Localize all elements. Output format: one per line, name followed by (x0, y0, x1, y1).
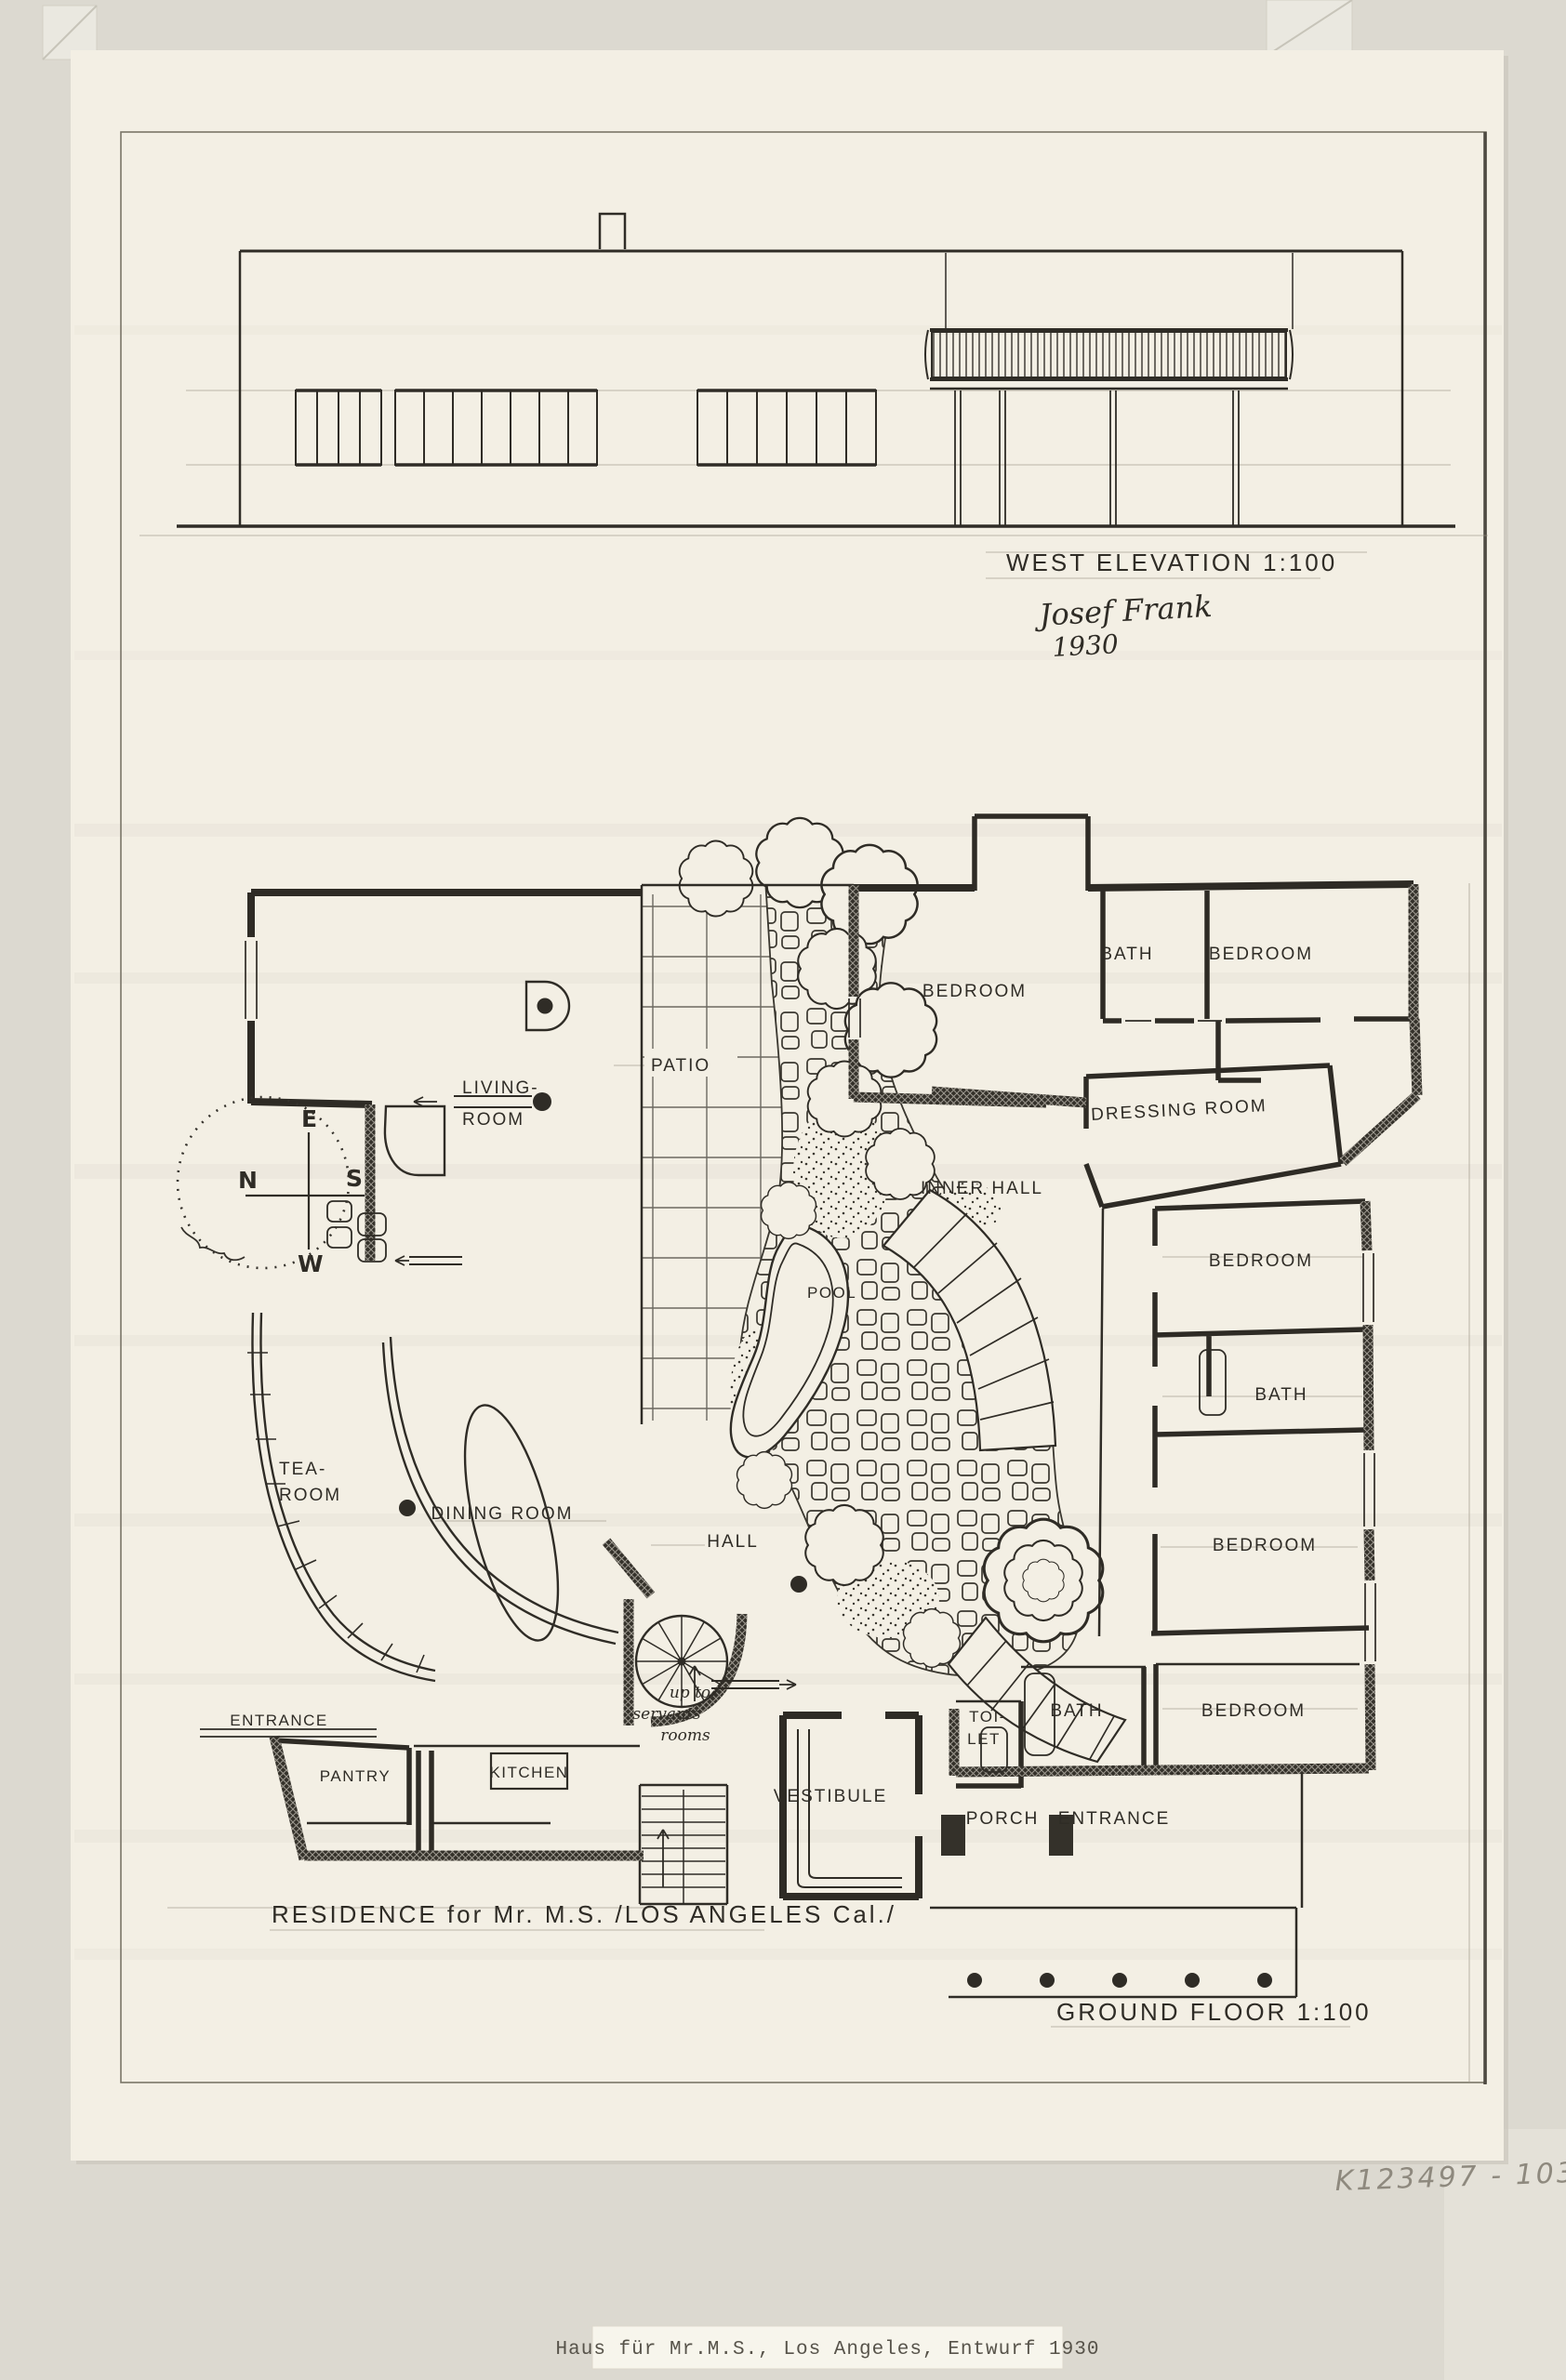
photo-corner-top-right (1267, 0, 1352, 56)
compass-north: N (238, 1167, 258, 1194)
label-dining-room: DINING ROOM (431, 1504, 574, 1524)
round-bush (984, 1519, 1103, 1642)
label-vestibule: VESTIBULE (774, 1787, 888, 1806)
signature-year: 1930 (1052, 628, 1120, 663)
label-tea-line2: ROOM (279, 1486, 341, 1505)
label-stair-note-line3: rooms (660, 1726, 710, 1745)
label-pantry: PANTRY (320, 1767, 391, 1785)
label-tea-line1: TEA- (279, 1460, 326, 1479)
label-patio: PATIO (651, 1056, 710, 1076)
label-toilet-line1: TOI- (969, 1708, 1006, 1725)
scanned-drawing: E N S W PATIO LIVING- ROOM BEDROOM BATH … (0, 0, 1566, 2380)
label-bedroom-top: BEDROOM (922, 982, 1027, 1001)
label-entrance-main: ENTRANCE (1058, 1809, 1171, 1829)
typed-label-text: Haus für Mr.M.S., Los Angeles, Entwurf 1… (556, 2339, 1100, 2360)
label-bedroom-top-right: BEDROOM (1209, 945, 1313, 964)
label-stair-note-line2: servants (632, 1705, 700, 1724)
label-bedroom-low: BEDROOM (1213, 1536, 1317, 1555)
label-porch: PORCH (966, 1809, 1040, 1829)
label-pool: POOL (807, 1284, 856, 1302)
label-bedroom-south: BEDROOM (1201, 1701, 1306, 1721)
elevation-title: WEST ELEVATION 1:100 (1006, 549, 1337, 576)
label-bath-top: BATH (1100, 945, 1153, 964)
label-living-line1: LIVING- (462, 1078, 539, 1098)
label-inner-hall: INNER HALL (921, 1179, 1043, 1198)
label-bath-mid: BATH (1254, 1385, 1307, 1405)
label-kitchen: KITCHEN (489, 1764, 568, 1781)
compass-east: E (301, 1105, 317, 1132)
compass-south: S (346, 1165, 363, 1192)
residence-caption: RESIDENCE for Mr. M.S. /LOS ANGELES Cal.… (272, 1900, 896, 1928)
typed-label-slip: Haus für Mr.M.S., Los Angeles, Entwurf 1… (556, 2326, 1100, 2369)
label-bath-south: BATH (1050, 1701, 1103, 1721)
drawing-canvas: E N S W PATIO LIVING- ROOM BEDROOM BATH … (0, 0, 1566, 2380)
compass-west: W (298, 1250, 324, 1277)
label-bedroom-mid: BEDROOM (1209, 1251, 1313, 1271)
label-living-line2: ROOM (462, 1110, 524, 1130)
label-toilet-line2: LET (967, 1730, 1001, 1748)
label-entrance-side: ENTRANCE (230, 1712, 328, 1729)
ground-floor-title: GROUND FLOOR 1:100 (1056, 1998, 1372, 2026)
label-hall: HALL (707, 1532, 759, 1552)
label-stair-note-line1: up to (670, 1684, 710, 1702)
